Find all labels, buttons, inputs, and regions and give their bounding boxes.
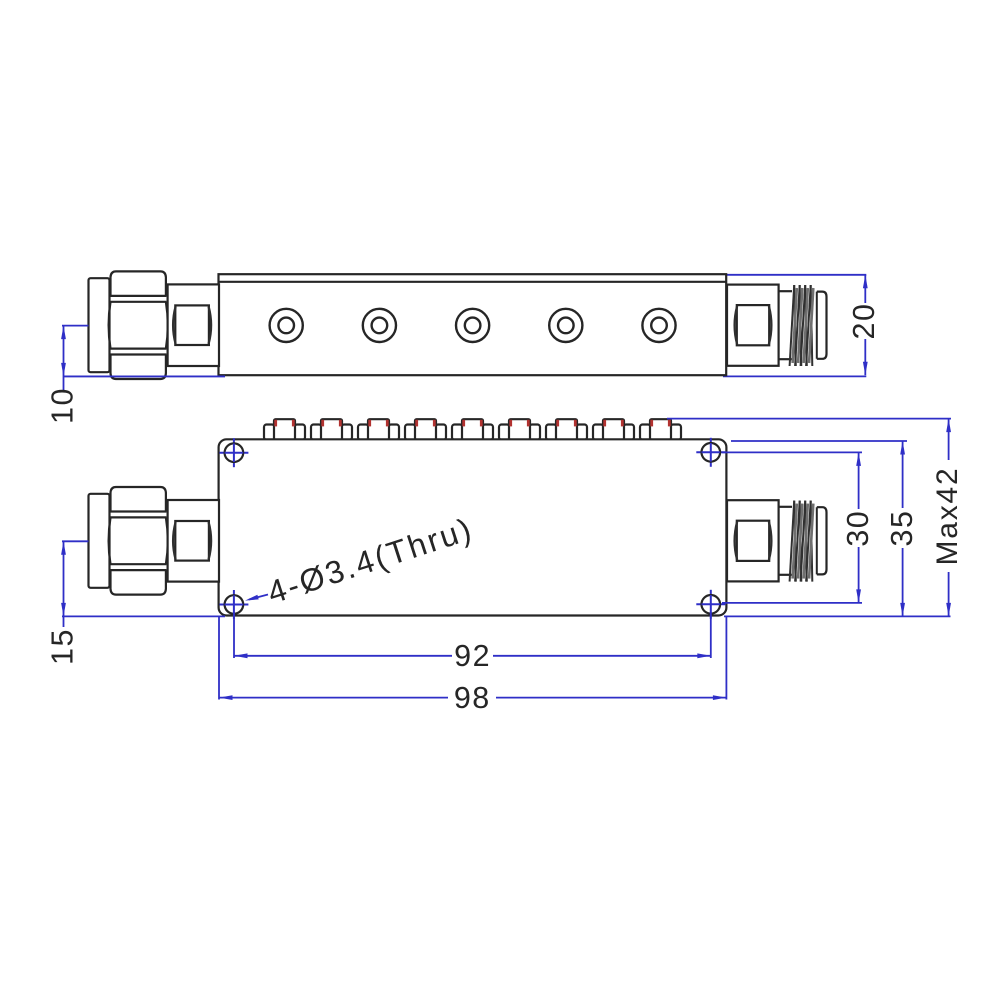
svg-text:35: 35 <box>885 510 919 547</box>
svg-text:30: 30 <box>841 510 875 547</box>
svg-text:Max42: Max42 <box>931 466 964 565</box>
svg-text:20: 20 <box>847 303 881 340</box>
svg-text:10: 10 <box>46 387 80 424</box>
svg-text:98: 98 <box>454 681 491 715</box>
svg-text:92: 92 <box>454 639 491 673</box>
svg-text:15: 15 <box>46 628 80 665</box>
